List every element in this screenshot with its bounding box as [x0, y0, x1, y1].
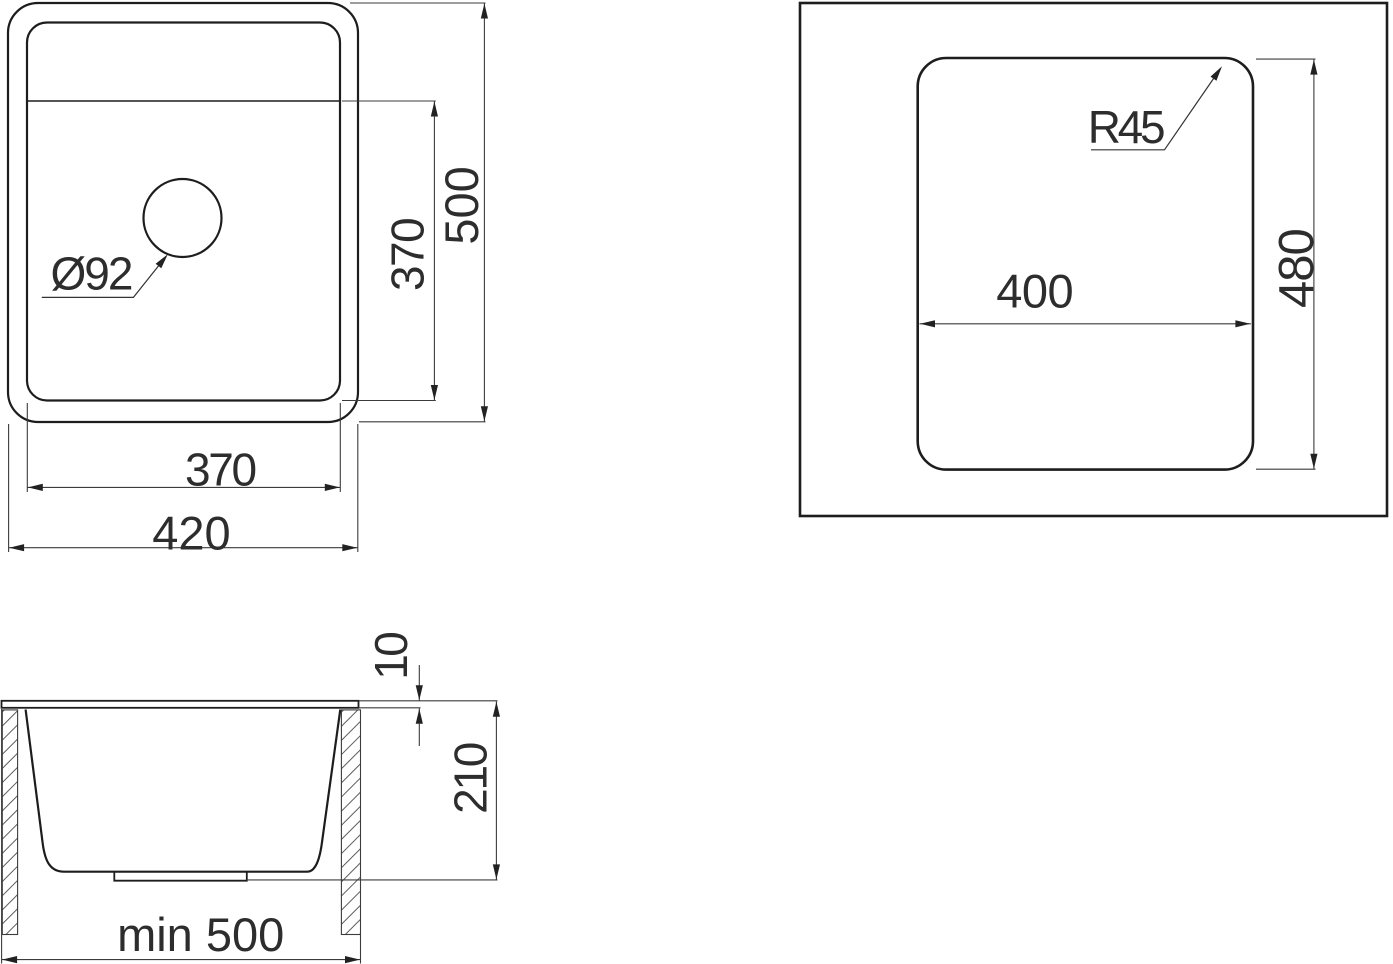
svg-text:R45: R45: [1088, 101, 1164, 153]
svg-text:370: 370: [185, 444, 256, 496]
svg-text:480: 480: [1270, 229, 1324, 308]
svg-text:420: 420: [152, 507, 230, 560]
svg-text:370: 370: [382, 219, 434, 291]
svg-text:10: 10: [365, 633, 417, 680]
svg-text:Ø92: Ø92: [51, 248, 132, 300]
svg-text:210: 210: [445, 743, 497, 814]
svg-text:min 500: min 500: [117, 908, 284, 961]
svg-text:500: 500: [435, 166, 488, 244]
svg-text:400: 400: [996, 265, 1073, 318]
